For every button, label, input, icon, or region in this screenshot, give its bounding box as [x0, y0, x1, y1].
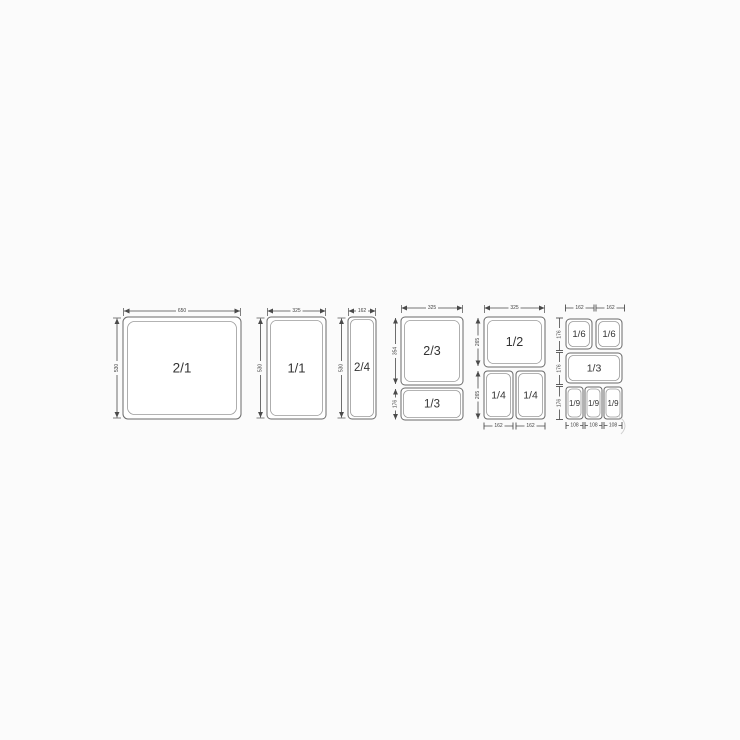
pan-size-label-1-9-c: 1/9: [607, 399, 619, 408]
pan-size-label-1-4-right: 1/4: [523, 390, 538, 402]
panel-gn-1-6-1-3-1-9: 162 162 176 176 176 1/6 1/6 1/3 1/9 1/9 …: [556, 305, 625, 434]
pan-size-label-1-3-wide: 1/3: [587, 363, 602, 375]
width-dim-value: 650: [178, 308, 187, 314]
width-dim-value: 325: [510, 305, 519, 311]
pan-size-label-1-9-a: 1/9: [569, 399, 581, 408]
width-dim-value: 325: [428, 305, 437, 311]
panel-gn-1-2-and-1-4: 325 265 265 1/2 1/4 1/4 162 162: [475, 305, 546, 429]
pan-size-label-1-2: 1/2: [506, 335, 523, 349]
bottom-dim-value-right: 162: [526, 423, 535, 429]
panel-gn-2-4: 162 530 2/4: [338, 308, 377, 419]
width-dim-value: 325: [292, 308, 301, 314]
height-dim-value: 530: [339, 364, 345, 373]
height-dim-value: 530: [114, 364, 120, 373]
pan-size-label-1-6-right: 1/6: [602, 329, 615, 340]
pan-size-label-1-6-left: 1/6: [572, 329, 585, 340]
pan-size-label: 1/1: [287, 361, 305, 376]
panel-gn-2-1: 650 530 2/1: [113, 308, 241, 419]
gastronorm-size-diagram: 650 530 2/1 325 530 1/1 162: [0, 0, 740, 740]
pan-size-label-1-3: 1/3: [424, 399, 440, 411]
panel-gn-1-1: 325 530 1/1: [257, 308, 327, 419]
bottom-dim-value-left: 162: [494, 423, 503, 429]
bottom-dim-value-2: 108: [589, 423, 598, 429]
pan-size-label-1-9-b: 1/9: [588, 399, 600, 408]
pan-size-label-2-3: 2/3: [423, 344, 440, 358]
pan-size-label: 2/4: [354, 362, 371, 374]
height-dim-value: 530: [258, 364, 264, 373]
left-dim-value-2: 176: [557, 364, 563, 373]
height-dim-value-1-2: 265: [475, 338, 481, 347]
height-dim-value-1-3: 176: [393, 400, 399, 409]
diagram-canvas: 650 530 2/1 325 530 1/1 162: [0, 0, 740, 740]
top-dim-value-1: 162: [575, 305, 584, 311]
left-dim-value-1: 176: [557, 330, 563, 339]
bottom-dim-value-1: 108: [570, 423, 579, 429]
top-dim-value-2: 162: [606, 305, 615, 311]
panel-gn-2-3-and-1-3: 325 354 176 2/3 1/3: [392, 305, 463, 420]
pan-size-label-1-4-left: 1/4: [491, 390, 506, 402]
height-dim-value-1-4: 265: [475, 391, 481, 400]
height-dim-value-2-3: 354: [393, 347, 399, 356]
left-dim-value-3: 176: [557, 399, 563, 408]
pan-size-label: 2/1: [173, 361, 192, 376]
bottom-dim-value-3: 108: [609, 423, 618, 429]
width-dim-value: 162: [358, 308, 367, 314]
